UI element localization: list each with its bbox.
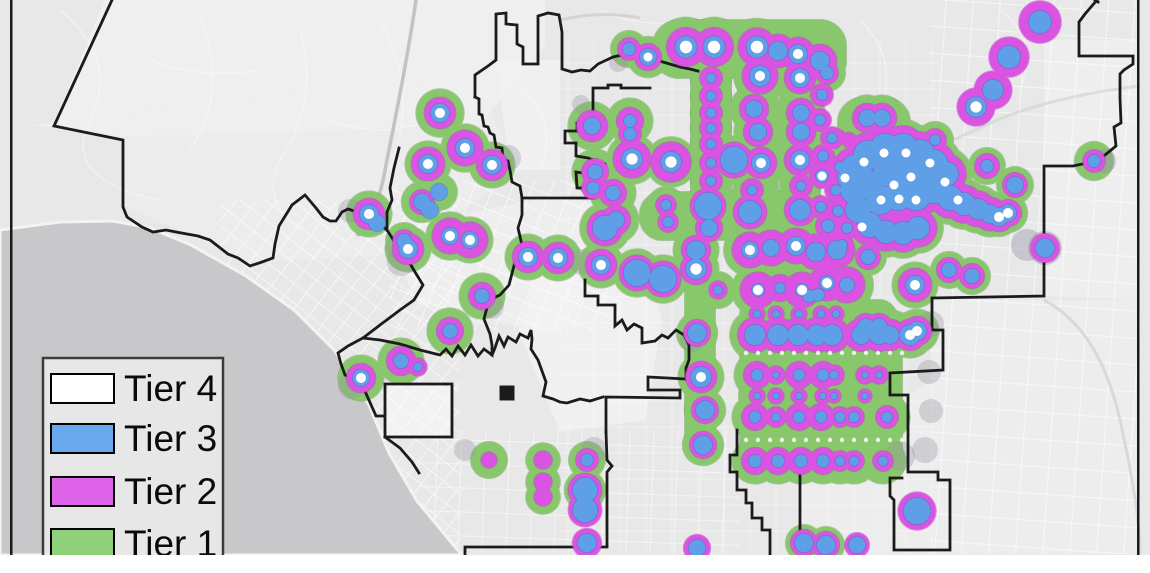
- svg-text:Tier 2: Tier 2: [124, 471, 217, 512]
- svg-text:Tier 4: Tier 4: [124, 368, 217, 409]
- svg-text:Tier 3: Tier 3: [124, 418, 217, 459]
